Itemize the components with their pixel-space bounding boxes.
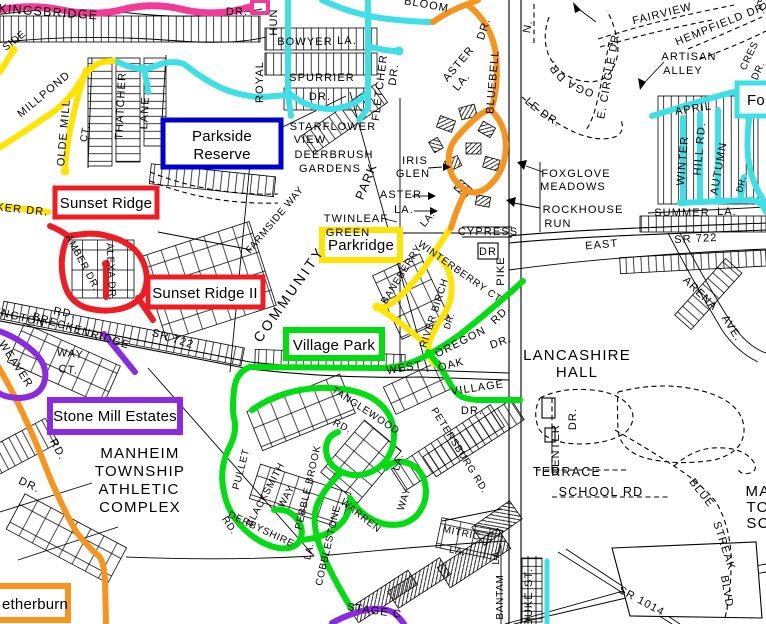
street-label-fairview: FAIRVIEW bbox=[631, 1, 693, 27]
street-label-pike: PIKE bbox=[495, 256, 507, 285]
street-label-la: LA. bbox=[337, 35, 357, 47]
leaders bbox=[385, 2, 664, 222]
street-label-deerbrush: DEERBRUSH bbox=[295, 149, 374, 161]
area-label-complex: COMPLEX bbox=[99, 499, 181, 516]
building bbox=[466, 143, 481, 154]
building bbox=[483, 156, 500, 171]
street-label-ave: AVE. bbox=[719, 313, 744, 344]
fo-label: Fo bbox=[747, 92, 765, 109]
street-label-la: LA. bbox=[717, 206, 737, 218]
street-label-farmside-way: FARMSIDE WAY bbox=[244, 185, 306, 256]
street-label-east: EAST bbox=[585, 238, 619, 253]
street-label-la: LA. bbox=[302, 542, 317, 561]
street-label-la: LA. bbox=[394, 204, 414, 216]
street-label-aster: ASTER bbox=[380, 189, 422, 201]
area-label-township: TOWNSHIP bbox=[95, 463, 185, 480]
street-label-dr: DR. bbox=[461, 405, 483, 417]
parkridge-label: Parkridge bbox=[328, 237, 394, 254]
street-label-dr: DR. bbox=[387, 63, 402, 87]
road-segment bbox=[50, 226, 68, 236]
map-canvas: Parkside Reserve Sunset Ridge Sunset Rid… bbox=[0, 0, 766, 624]
arrow-icon bbox=[506, 197, 516, 207]
street-label-iris: IRIS bbox=[402, 155, 428, 167]
street-label-view: VIEW bbox=[294, 134, 327, 146]
street-label-n: N. bbox=[521, 19, 535, 34]
street-map: Parkside Reserve Sunset Ridge Sunset Rid… bbox=[0, 0, 766, 624]
parkside-reserve-label: Reserve bbox=[193, 146, 250, 163]
street-label-hun: HUN bbox=[268, 8, 280, 35]
street-label-run: RUN bbox=[544, 218, 571, 230]
lot-grid bbox=[620, 250, 766, 274]
street-label-dr: DR bbox=[479, 246, 497, 258]
area-label-sc: SC bbox=[746, 515, 766, 532]
street-label-dr: DR. bbox=[488, 333, 513, 352]
street-label-school-rd: SCHOOL RD bbox=[559, 485, 644, 499]
area-label-ma: MA bbox=[746, 483, 766, 500]
arrow-icon bbox=[573, 2, 581, 13]
street-label-spurrier: SPURRIER bbox=[289, 72, 355, 84]
street-label-twinleaf: TWINLEAF bbox=[324, 213, 388, 225]
village-park-label: Village Park bbox=[293, 337, 375, 354]
street-label-dr: DR. bbox=[309, 91, 331, 103]
street-label-dr: DR. bbox=[17, 475, 42, 495]
street-label-bloom: BLOOM bbox=[403, 0, 450, 15]
sunset-ridge-label: Sunset Ridge bbox=[60, 195, 152, 212]
arrow-icon bbox=[638, 78, 646, 90]
street-label-bantam: BANTAM bbox=[495, 574, 506, 619]
cul-de-sac bbox=[395, 47, 404, 56]
street-label-ct: CT. bbox=[58, 363, 79, 377]
stone-mill-label: Stone Mill Estates bbox=[53, 408, 177, 425]
area-label-to: TO bbox=[747, 499, 766, 516]
parkside-reserve-label: Parkside bbox=[192, 128, 252, 145]
street-label-summer: SUMMER bbox=[654, 207, 710, 219]
street-label-la: LA. bbox=[448, 544, 467, 558]
building bbox=[478, 121, 496, 138]
road-terminus bbox=[252, 1, 268, 13]
leader-line bbox=[645, 62, 664, 82]
building-outline bbox=[612, 542, 762, 618]
dashed-loop bbox=[618, 386, 745, 463]
building bbox=[475, 195, 491, 207]
royal-route bbox=[288, 0, 291, 116]
leader-line bbox=[580, 10, 596, 22]
street-label-oregon: OREGON bbox=[433, 324, 488, 360]
street-label-artisan: ARTISAN bbox=[661, 51, 716, 63]
netherburn-label: etherburn bbox=[2, 596, 68, 613]
cul-de-sac bbox=[61, 167, 70, 176]
street-label-dr: DR. bbox=[567, 408, 579, 430]
street-label-dr: DR. bbox=[226, 6, 248, 18]
street-label-duke-st: DUKE ST. bbox=[523, 568, 535, 624]
street-label-meadows: MEADOWS bbox=[540, 181, 606, 193]
road-segment bbox=[0, 51, 13, 72]
street-label-way: WAY bbox=[396, 486, 414, 512]
area-label-hall: HALL bbox=[556, 364, 598, 381]
street-label-glen: GLEN bbox=[396, 168, 430, 180]
street-label-rockhouse: ROCKHOUSE bbox=[543, 204, 624, 216]
street-label-green: GREEN bbox=[326, 227, 371, 239]
street-label-royal: ROYAL bbox=[254, 61, 266, 103]
street-label-rd: RD. bbox=[47, 437, 68, 462]
street-label-foxglove: FOXGLOVE bbox=[541, 168, 610, 180]
street-label-gardens: GARDENS bbox=[299, 163, 361, 175]
leader-line bbox=[514, 203, 540, 208]
sunset-ridge-2-label: Sunset Ridge II bbox=[152, 285, 258, 302]
street-label-cypress: CYPRESS bbox=[458, 226, 518, 238]
street-label-starflower: STARFLOWER bbox=[290, 121, 377, 133]
street-label-sr722: SR 722 bbox=[674, 232, 718, 246]
street-label-e-circle: E. CIRCLE DR. bbox=[595, 29, 622, 120]
area-label-manheim: MANHEIM bbox=[100, 445, 179, 462]
street-label-bowyer: BOWYER bbox=[277, 36, 333, 48]
boundary-line bbox=[126, 556, 314, 559]
street-label-alley: ALLEY bbox=[663, 65, 703, 77]
area-label-lancashire: LANCASHIRE bbox=[523, 347, 631, 364]
road-segment bbox=[451, 190, 466, 228]
street-label-la: LA. bbox=[491, 547, 502, 564]
street-label-stage: STAGE C bbox=[346, 601, 402, 621]
street-label-lane: LANE bbox=[138, 96, 152, 130]
building bbox=[429, 137, 444, 152]
dashed-road bbox=[674, 448, 755, 474]
area-label-athletic: ATHLETIC bbox=[99, 481, 180, 498]
arrow-icon bbox=[517, 160, 527, 170]
arrow-icon bbox=[428, 192, 436, 200]
street-label-pullet: PULLET bbox=[231, 448, 252, 491]
street-label-village: VILLAGE bbox=[450, 378, 505, 397]
building bbox=[436, 116, 455, 133]
cul-de-sac bbox=[373, 303, 382, 312]
building-outline bbox=[542, 398, 555, 418]
street-label-ker-dr: KER DR. bbox=[0, 201, 49, 218]
street-label-center: CENTER bbox=[550, 424, 562, 476]
street-label-terrace: TERRACE bbox=[533, 465, 601, 479]
street-label-blue: BLUE bbox=[686, 476, 716, 510]
